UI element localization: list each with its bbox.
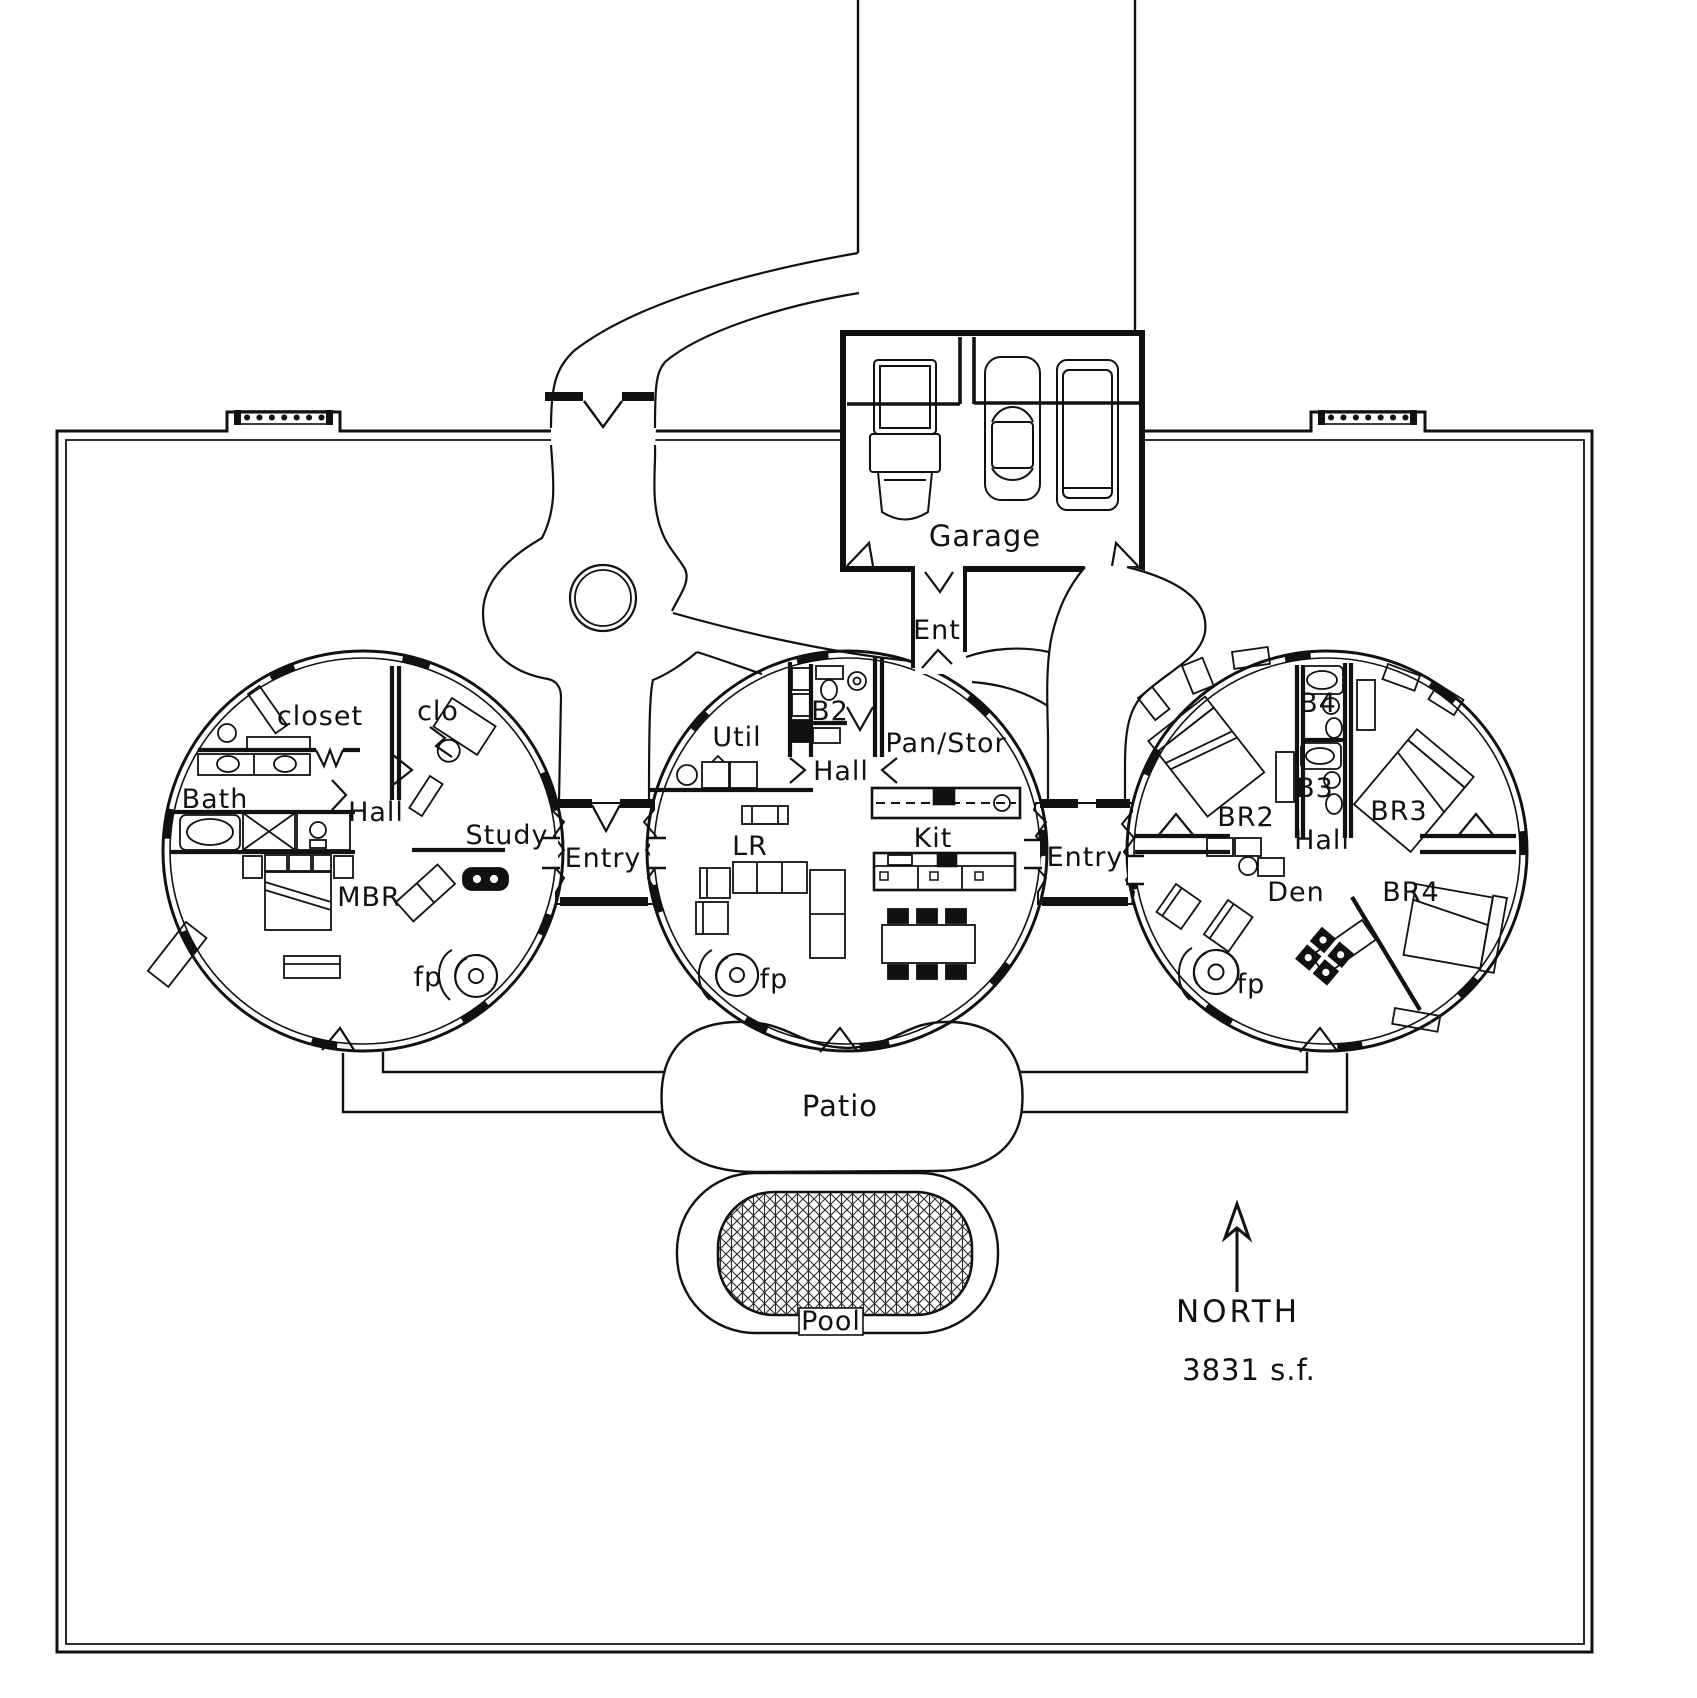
label-pan-stor: Pan/Stor (885, 728, 1006, 759)
label-br4: BR4 (1382, 877, 1439, 908)
boundary-outer-line (57, 412, 1592, 1652)
label-den: Den (1267, 877, 1325, 908)
floor-plan-drawing: closet clo Bath Hall Study MBR fp Entry … (0, 0, 1697, 1698)
pantry-counter (872, 788, 1020, 818)
mbr-furniture (148, 855, 353, 987)
entry-east-door-gap-right (1128, 856, 1144, 884)
dining-table-icon (882, 925, 975, 963)
north-arrow-icon (1225, 1204, 1249, 1292)
fireplace-icon-master (439, 950, 497, 1000)
label-b2: B2 (811, 696, 849, 727)
floor-plan-page: closet clo Bath Hall Study MBR fp Entry … (0, 0, 1697, 1698)
mbr-door-chevron (332, 780, 346, 810)
tub-icon (1301, 743, 1341, 769)
label-patio: Patio (802, 1089, 878, 1123)
label-hall-master: Hall (348, 797, 404, 828)
label-bath: Bath (182, 784, 249, 815)
property-boundary (57, 410, 1592, 1652)
label-closet: closet (277, 701, 363, 732)
label-area: 3831 s.f. (1182, 1353, 1316, 1387)
hall-west-chevron (790, 758, 805, 783)
study-furniture (396, 698, 508, 921)
driveway (858, 0, 1135, 333)
fireplace-icon-bedrooms (1179, 948, 1239, 1000)
entry-west-door-gap-right (650, 838, 666, 868)
kitchen-counter (874, 853, 1015, 890)
label-fp-living: fp (760, 964, 789, 995)
label-hall-living: Hall (813, 756, 869, 787)
closet-door-chevron (316, 750, 343, 766)
label-pool: Pool (801, 1306, 861, 1337)
utility-sink-icon (677, 765, 697, 785)
label-br3: BR3 (1370, 796, 1427, 827)
label-ent: Ent (913, 615, 961, 646)
label-north: NORTH (1176, 1294, 1300, 1330)
label-lr: LR (732, 831, 768, 862)
entry-west-chevron (592, 805, 620, 831)
label-fp-bedrooms: fp (1237, 969, 1266, 1000)
br3-door-chevron (1458, 814, 1494, 836)
sofa-icon (733, 862, 807, 893)
fireplace-icon-living (699, 950, 758, 1000)
hall-east-chevron (882, 758, 897, 783)
lr-furniture (696, 806, 845, 958)
label-mbr: MBR (337, 882, 401, 913)
gate-opening-chevron (584, 401, 622, 427)
label-b3: B3 (1296, 773, 1334, 804)
utility-fixtures (677, 756, 757, 788)
mbr-bed-icon (265, 872, 331, 930)
label-entry-west: Entry (565, 843, 642, 874)
gate-post-left (545, 392, 583, 401)
stove-icon (938, 854, 956, 866)
pool-water (718, 1192, 972, 1315)
label-garage: Garage (929, 519, 1041, 553)
label-clo: clo (417, 696, 459, 727)
br2-door-chevron (1158, 814, 1194, 836)
label-util: Util (712, 722, 761, 753)
label-kit: Kit (914, 823, 953, 854)
dining-set (882, 909, 975, 979)
b2-door-chevron (847, 707, 873, 730)
den-furniture (1156, 838, 1352, 984)
entry-east-door-gap-left (1024, 840, 1040, 868)
label-hall-bedrooms: Hall (1294, 825, 1350, 856)
label-b4: B4 (1299, 688, 1337, 719)
game-table-icon (1296, 928, 1352, 984)
kitchen-sink-icon (888, 855, 912, 865)
label-fp-master: fp (414, 962, 443, 993)
toilet-icon (1326, 718, 1342, 738)
label-entry-east: Entry (1047, 842, 1124, 873)
label-br2: BR2 (1217, 802, 1274, 833)
coffee-table-icon (742, 806, 788, 824)
label-study: Study (466, 820, 549, 851)
study-door-chevron (393, 755, 412, 785)
media-console-icon (463, 868, 508, 890)
gate-post-right (622, 392, 654, 401)
toilet-icon (310, 822, 326, 838)
